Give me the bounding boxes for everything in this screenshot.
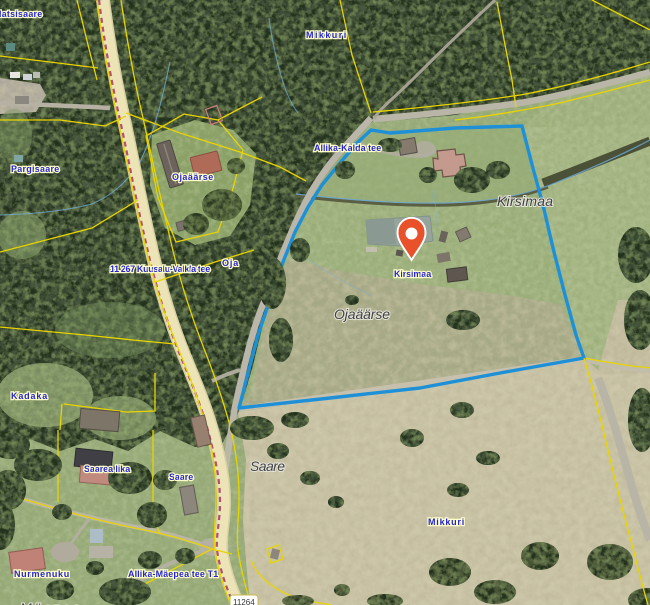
svg-text:Mikkuri: Mikkuri <box>306 30 346 40</box>
svg-text:Kirsimaa: Kirsimaa <box>497 193 553 209</box>
svg-text:Kadaka: Kadaka <box>11 391 48 401</box>
svg-text:Kirsimaa: Kirsimaa <box>394 269 432 279</box>
svg-text:Ojaäärse: Ojaäärse <box>334 306 390 322</box>
svg-text:11 267 Kuusalu-Valkla tee: 11 267 Kuusalu-Valkla tee <box>110 264 210 274</box>
svg-text:Saare: Saare <box>169 472 193 482</box>
svg-text:Nurmenuku: Nurmenuku <box>14 569 69 579</box>
svg-text:Saare: Saare <box>250 458 285 474</box>
svg-text:Oja: Oja <box>222 258 239 268</box>
svg-text:Allika-Mäepea tee T1: Allika-Mäepea tee T1 <box>128 569 218 579</box>
svg-text:Mikkuri: Mikkuri <box>428 517 464 527</box>
svg-text:Pargisaare: Pargisaare <box>11 164 59 174</box>
svg-text:11264: 11264 <box>233 598 255 605</box>
svg-text:Allika-Kalda tee: Allika-Kalda tee <box>314 143 381 153</box>
svg-text:Ojaäärse: Ojaäärse <box>172 172 213 182</box>
svg-text:Saarea lika: Saarea lika <box>84 464 131 474</box>
svg-text:latsisaare: latsisaare <box>0 9 42 19</box>
